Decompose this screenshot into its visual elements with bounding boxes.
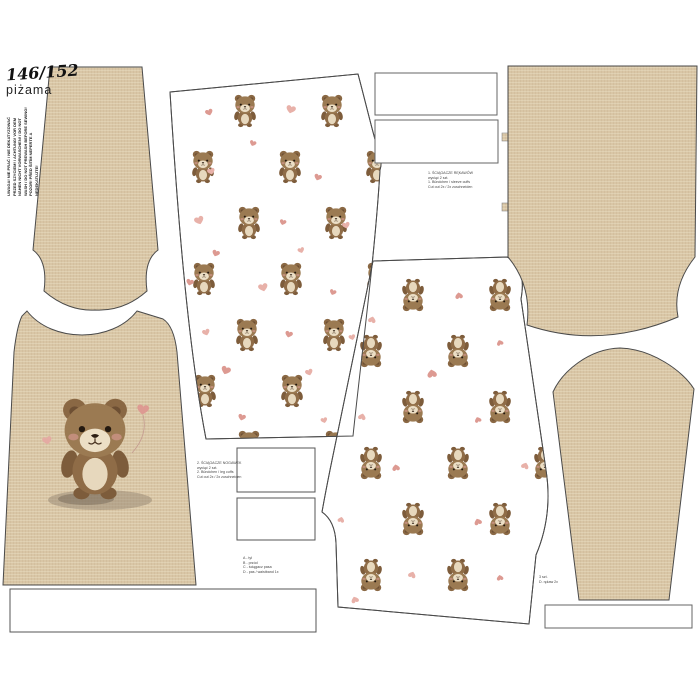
sleeve-cuffs-label: 1. ŚCIĄGACZE RĘKAWÓW wyciąć 2 szt. 1. Bü… <box>428 171 488 189</box>
leg-cuffs-label: 2. ŚCIĄGACZE NOGAWEK wyciąć 2 szt. 2. Bü… <box>197 461 257 479</box>
sleeve-cuff-rect <box>545 605 692 628</box>
cuff-piece-rect-1 <box>375 73 497 115</box>
sewing-pattern-panel: 146/152 piżama UWAGA! NIE PRAĆ / NIE DEK… <box>0 0 700 700</box>
teddy-bear-icon <box>446 223 469 255</box>
sleeve-piece <box>553 348 694 600</box>
pieces-legend: A - tył B - przód C - ściągacz pasa D - … <box>243 556 313 574</box>
care-instructions: UWAGA! NIE PRAĆ / NIE DEKATYZOWAĆ PRZED … <box>6 99 40 196</box>
heart-icon <box>413 246 421 253</box>
pattern-sheet <box>0 0 700 700</box>
back-bodice-piece <box>33 67 158 310</box>
rib-piece-rect-2 <box>237 498 315 540</box>
cuff-piece-rect-2 <box>375 120 498 163</box>
heart-icon <box>436 616 444 623</box>
back-bodice-piece-right <box>508 66 697 336</box>
care-line: NEDEKATUJTE! <box>34 99 40 196</box>
sleeve-note-label: 3 szt. D. rękaw 2x <box>539 575 579 584</box>
garment-label: piżama <box>6 83 52 97</box>
waistband-piece-rect <box>10 589 316 632</box>
